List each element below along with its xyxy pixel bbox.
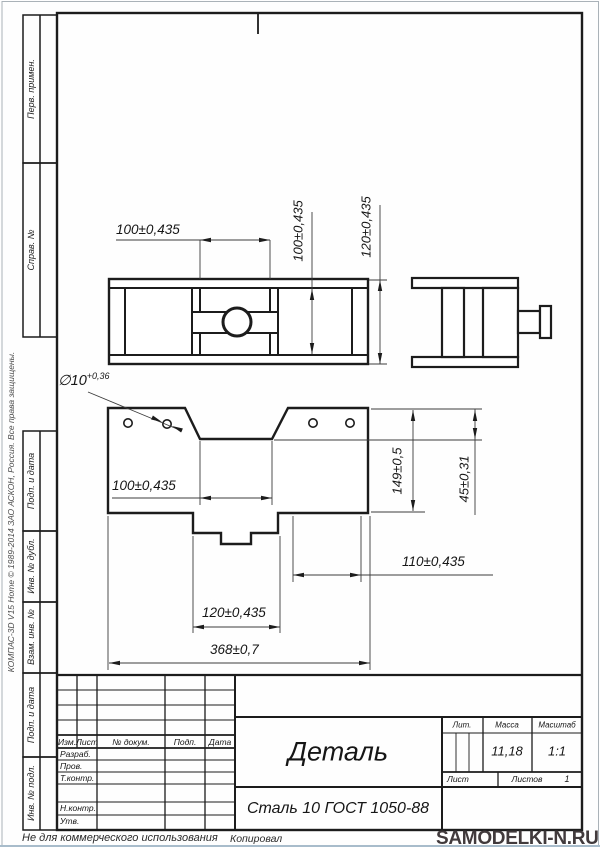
top-view [109,279,368,364]
part-title: Деталь [288,737,388,768]
hole-tolerance: +0,36 [87,371,110,381]
front-view [108,408,368,544]
dim-overall-width: 368±0,7 [210,642,259,657]
dim-topview-width: 100±0,435 [116,222,180,237]
footer-non-commercial: Не для коммерческого использования [22,832,218,844]
tb-sheets-value: 1 [564,774,569,784]
site-watermark[interactable]: SAMODELKI-N.RU [436,828,599,847]
tb-sheets-label: Листов [512,774,543,784]
stamp-perv-primen: Перв. примен. [26,59,36,119]
dim-topview-overall-height: 120±0,435 [359,196,374,257]
dim-hole-callout: ∅10+0,36 [58,371,110,389]
dim-topview-inner-height: 100±0,435 [291,200,306,261]
dim-height: 149±0,5 [390,448,405,495]
tb-row-razrab: Разраб. [60,749,91,759]
tb-col-list: Лист [76,737,98,747]
tb-col-data: Дата [209,737,231,747]
tb-row-tkontr: Т.контр. [60,773,94,783]
dim-step-width: 120±0,435 [202,605,266,620]
tb-scale-value: 1:1 [548,744,566,759]
stamp-sprav-no: Справ. № [26,230,36,271]
material-spec: Сталь 10 ГОСТ 1050-88 [247,800,429,818]
footer-copied-by: Копировал [230,833,282,845]
tb-scale-label: Масштаб [538,721,575,730]
stamp-podp-data-2: Подп. и дата [26,687,36,743]
tb-col-doc: № докум. [112,737,149,747]
stamp-podp-data-1: Подп. и дата [26,453,36,509]
tb-lit-label: Лит. [453,721,472,730]
tb-mass-value: 11,18 [491,744,523,759]
dim-notch-width: 100±0,435 [112,478,176,493]
stamp-inv-podl: Инв. № подл. [26,765,36,821]
tb-row-nkontr: Н.контр. [60,803,96,813]
tb-col-podp: Подп. [174,737,197,747]
tb-mass-label: Масса [495,721,519,730]
stamp-inv-dubl: Инв. № дубл. [26,538,36,593]
tb-row-prov: Пров. [60,761,82,771]
side-view [412,278,551,367]
drawing-sheet: Перв. примен. Справ. № Подп. и дата Инв.… [0,0,600,847]
dim-notch-depth: 45±0,31 [457,456,472,503]
dim-right-offset: 110±0,435 [402,554,465,569]
stamp-vzam-inv: Взам. инв. № [26,609,36,665]
kompas-copyright: КОМПАС-3D V15 Home © 1989-2014 ЗАО АСКОН… [6,352,16,672]
hole-diameter: ∅10 [58,373,87,389]
tb-row-utv: Утв. [60,816,79,826]
tb-sheet-label: Лист [447,774,469,784]
tb-col-izm: Изм. [58,737,76,747]
